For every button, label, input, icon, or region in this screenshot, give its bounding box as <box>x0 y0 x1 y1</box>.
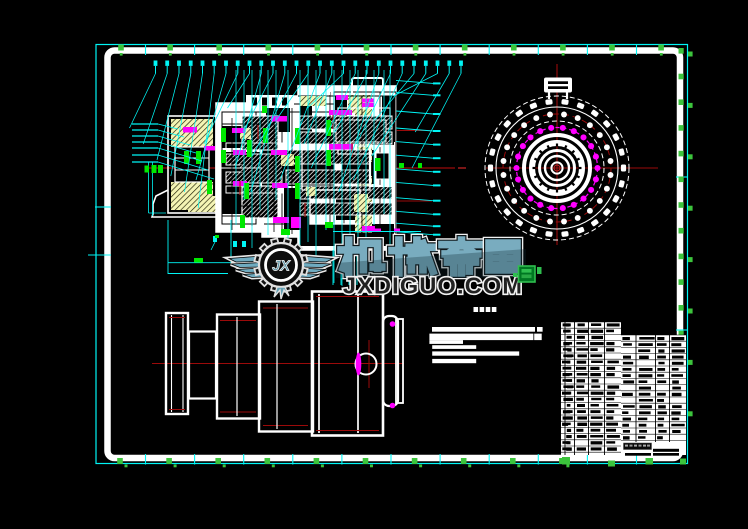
svg-text:JX: JX <box>272 259 291 275</box>
svg-text:JXDIGUO.COM: JXDIGUO.COM <box>343 273 523 299</box>
